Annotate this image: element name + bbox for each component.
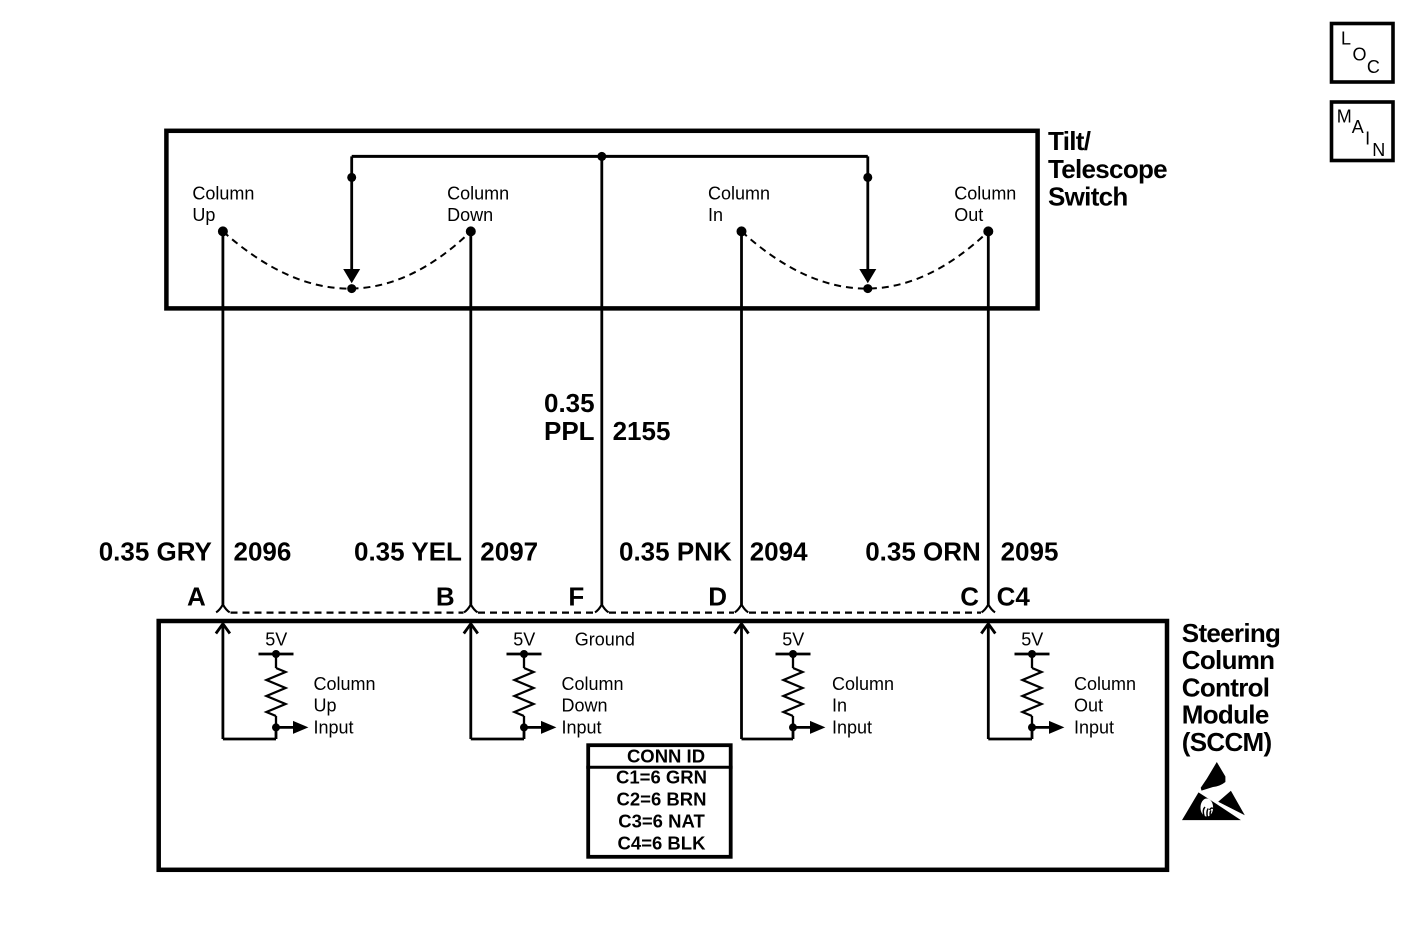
svg-text:Column: Column	[1182, 645, 1275, 675]
svg-text:5V: 5V	[1021, 629, 1043, 649]
svg-text:PPL: PPL	[544, 416, 595, 446]
svg-text:C3=6 NAT: C3=6 NAT	[618, 811, 705, 832]
svg-text:C4: C4	[997, 582, 1031, 612]
svg-text:Control: Control	[1182, 672, 1270, 702]
svg-text:5V: 5V	[265, 629, 287, 649]
svg-text:2094: 2094	[750, 537, 808, 567]
svg-text:Out: Out	[1074, 696, 1103, 716]
svg-text:0.35 ORN: 0.35 ORN	[865, 537, 981, 567]
svg-text:Column: Column	[1074, 674, 1136, 694]
svg-text:C: C	[1367, 57, 1380, 77]
svg-text:2097: 2097	[480, 537, 538, 567]
svg-text:2095: 2095	[1001, 537, 1059, 567]
svg-text:Out: Out	[954, 205, 983, 225]
svg-text:A: A	[1352, 117, 1364, 137]
svg-text:2155: 2155	[613, 416, 671, 446]
svg-text:Column: Column	[447, 184, 509, 204]
svg-text:M: M	[1337, 106, 1352, 126]
svg-text:(SCCM): (SCCM)	[1182, 727, 1272, 757]
svg-text:Column: Column	[562, 674, 624, 694]
svg-text:N: N	[1372, 140, 1385, 160]
svg-text:Down: Down	[562, 696, 608, 716]
svg-text:Up: Up	[192, 205, 215, 225]
svg-text:Input: Input	[1074, 717, 1114, 737]
svg-text:Steering: Steering	[1182, 618, 1280, 648]
svg-text:Column: Column	[954, 184, 1016, 204]
svg-text:0.35 YEL: 0.35 YEL	[354, 537, 462, 567]
svg-text:Tilt/: Tilt/	[1048, 126, 1091, 156]
svg-text:D: D	[708, 582, 727, 612]
svg-text:Switch: Switch	[1048, 182, 1128, 212]
svg-text:Module: Module	[1182, 700, 1269, 730]
svg-text:Input: Input	[832, 717, 872, 737]
svg-text:L: L	[1341, 29, 1351, 49]
svg-text:In: In	[708, 205, 723, 225]
svg-text:Telescope: Telescope	[1048, 154, 1167, 184]
svg-text:Column: Column	[708, 184, 770, 204]
svg-text:Ground: Ground	[575, 630, 635, 650]
svg-text:O: O	[1353, 44, 1367, 64]
svg-text:B: B	[436, 582, 455, 612]
svg-text:2096: 2096	[234, 537, 292, 567]
svg-text:C: C	[960, 582, 979, 612]
svg-text:C4=6 BLK: C4=6 BLK	[618, 832, 707, 853]
svg-text:Input: Input	[314, 717, 354, 737]
svg-text:Input: Input	[562, 717, 602, 737]
svg-text:Up: Up	[314, 696, 337, 716]
svg-text:Column: Column	[832, 674, 894, 694]
svg-text:0.35: 0.35	[544, 388, 595, 418]
svg-text:C2=6 BRN: C2=6 BRN	[617, 788, 707, 809]
svg-text:I: I	[1365, 128, 1370, 148]
svg-text:5V: 5V	[513, 629, 535, 649]
svg-text:Column: Column	[192, 184, 254, 204]
svg-text:F: F	[568, 582, 584, 612]
svg-text:0.35 GRY: 0.35 GRY	[99, 537, 212, 567]
svg-text:Column: Column	[314, 674, 376, 694]
svg-text:0.35 PNK: 0.35 PNK	[619, 537, 732, 567]
svg-text:Down: Down	[447, 205, 493, 225]
svg-text:5V: 5V	[782, 629, 804, 649]
svg-text:CONN ID: CONN ID	[627, 746, 705, 767]
svg-text:C1=6 GRN: C1=6 GRN	[616, 767, 707, 788]
svg-text:A: A	[187, 582, 206, 612]
svg-text:In: In	[832, 696, 847, 716]
